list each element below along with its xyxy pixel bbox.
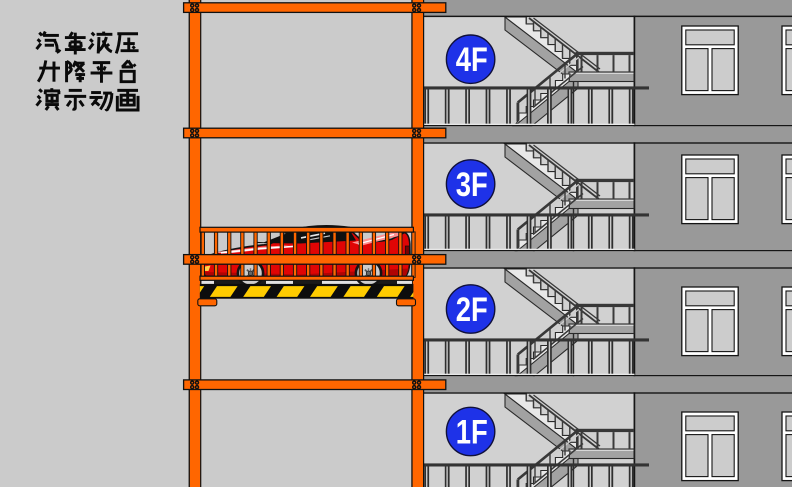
svg-text:1F: 1F bbox=[456, 414, 488, 452]
svg-text:3F: 3F bbox=[456, 166, 488, 204]
svg-text:4F: 4F bbox=[456, 41, 488, 79]
svg-text:2F: 2F bbox=[456, 291, 488, 329]
